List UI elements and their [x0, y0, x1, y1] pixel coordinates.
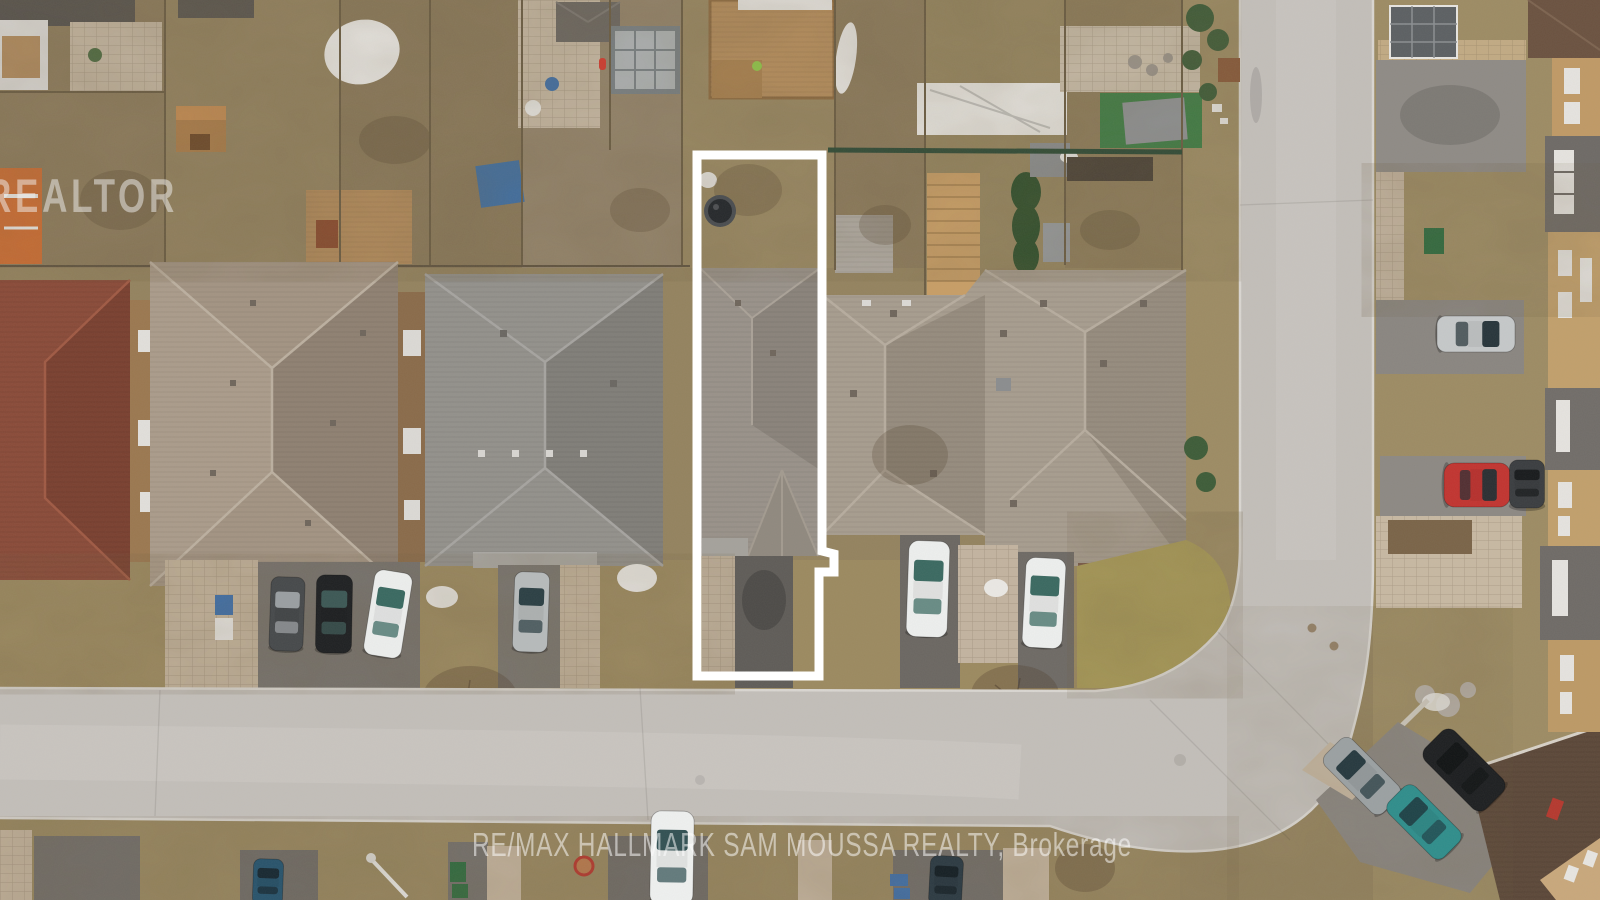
- watermark-brokerage: RE/MAX HALLMARK SAM MOUSSA REALTY, Broke…: [472, 826, 1132, 863]
- aerial-photo: REALTOR RE/MAX HALLMARK SAM MOUSSA REALT…: [0, 0, 1600, 900]
- photo-grain: [0, 0, 1600, 900]
- watermark-realtor: REALTOR: [0, 169, 178, 222]
- aerial-photo-canvas: REALTOR RE/MAX HALLMARK SAM MOUSSA REALT…: [0, 0, 1600, 900]
